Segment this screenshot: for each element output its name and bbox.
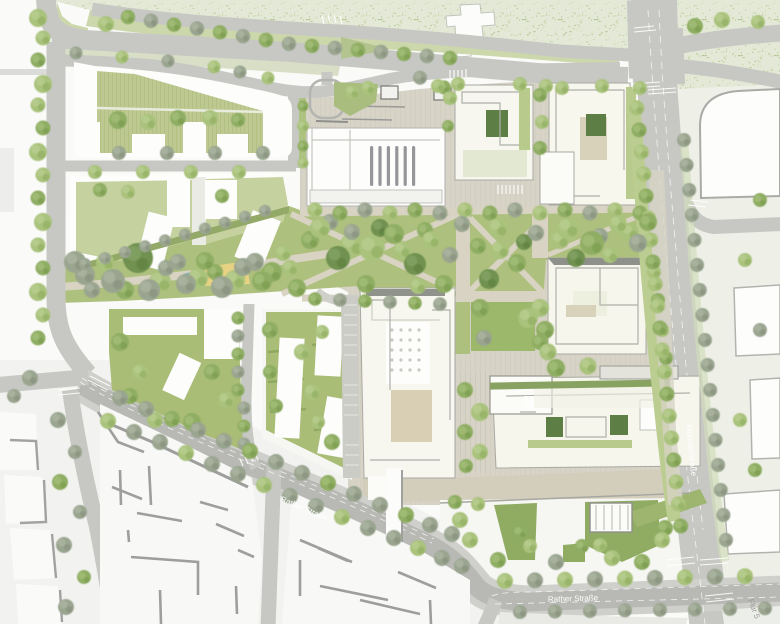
svg-text:Rather Straße: Rather Straße <box>548 593 599 604</box>
